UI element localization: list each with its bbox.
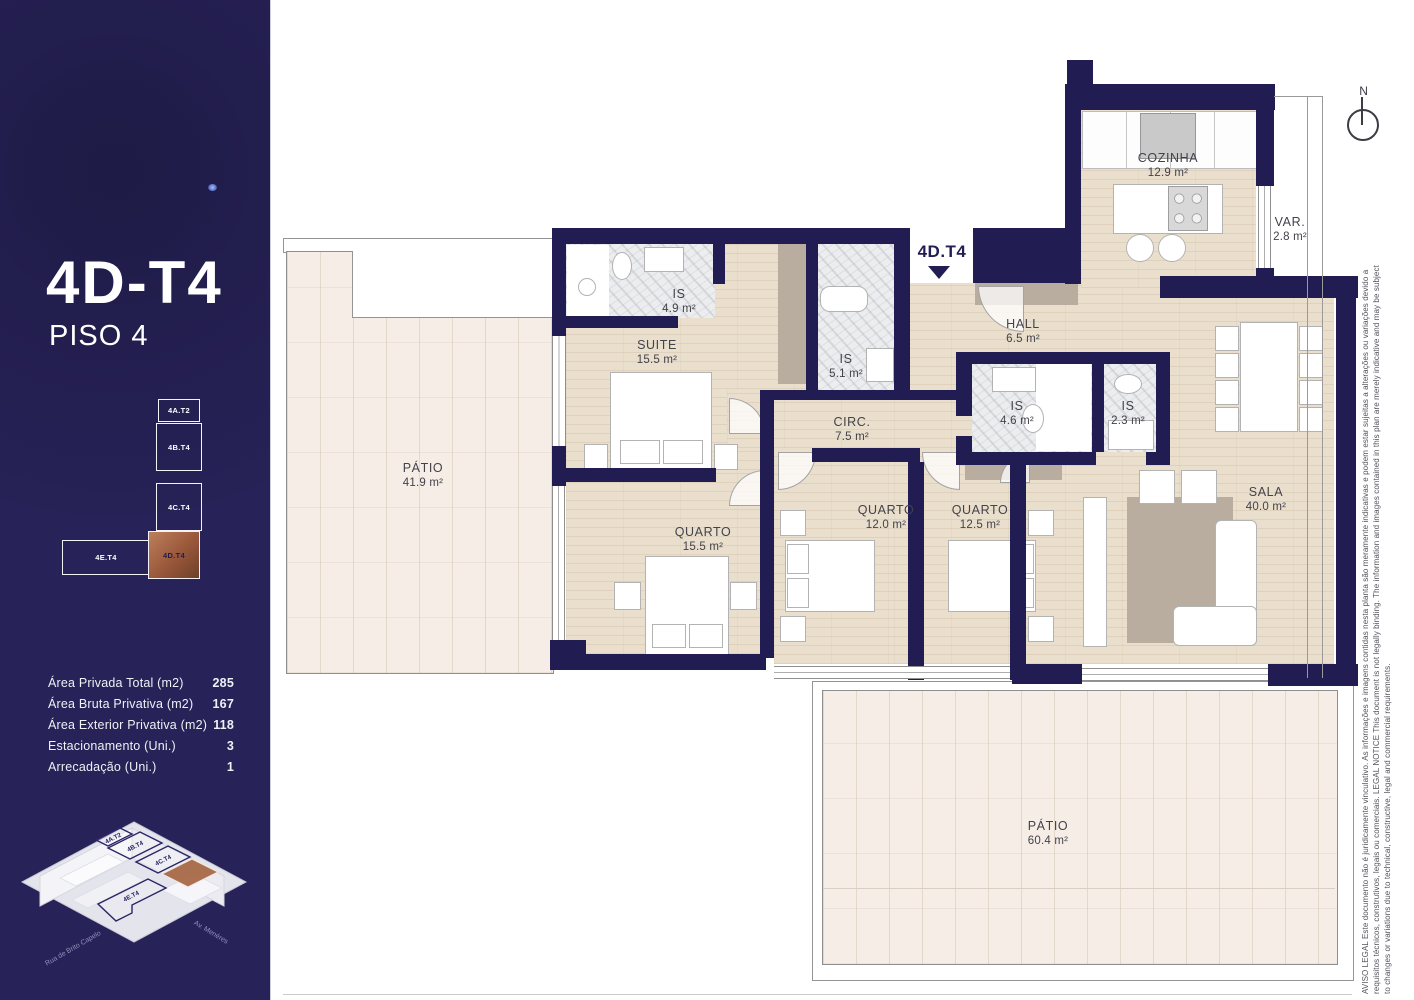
facade-line	[1322, 96, 1323, 678]
legal-line: AVISO LEGAL Este documento não é juridic…	[1360, 166, 1371, 994]
room-label-quarto3: QUARTO12.5 m²	[952, 503, 1009, 533]
area-table: Área Privada Total (m2)285 Área Bruta Pr…	[48, 676, 234, 774]
room-area: 12.0 m²	[858, 518, 915, 533]
armchair	[1139, 470, 1175, 504]
area-value: 3	[227, 739, 234, 753]
room-label-patio1: PÁTIO41.9 m²	[403, 461, 444, 491]
window	[552, 486, 565, 640]
area-label: Estacionamento (Uni.)	[48, 739, 176, 753]
room-label-is3: IS4.6 m²	[1000, 399, 1034, 429]
wardrobe-strip	[778, 244, 806, 384]
room-name: PÁTIO	[1028, 819, 1069, 834]
chair	[1215, 407, 1239, 432]
facade-line	[1307, 96, 1308, 678]
wall-segment	[1067, 60, 1093, 86]
room-name: QUARTO	[858, 503, 915, 518]
room-name: CIRC.	[833, 415, 870, 430]
area-row: Arrecadação (Uni.)1	[48, 760, 234, 774]
tv-sideboard	[1083, 497, 1107, 647]
wall-segment	[1256, 268, 1274, 298]
room-name: QUARTO	[952, 503, 1009, 518]
room-label-circ: CIRC.7.5 m²	[833, 415, 870, 445]
room-name: IS	[1111, 399, 1145, 414]
entrance-label: 4D.T4	[912, 242, 972, 262]
room-label-is2: IS5.1 m²	[829, 352, 863, 382]
pillow	[620, 440, 660, 464]
stack-unit-label: 4C.T4	[168, 503, 190, 512]
cooktop-icon	[1168, 186, 1208, 231]
wall-segment	[1268, 664, 1358, 686]
legal-line: requisitos técnicos, construtivos, legai…	[1371, 166, 1382, 994]
wall-segment	[1010, 462, 1026, 646]
room-label-quarto1: QUARTO15.5 m²	[675, 525, 732, 555]
room-area: 2.3 m²	[1111, 414, 1145, 429]
nightstand	[1028, 510, 1054, 536]
room-name: SALA	[1246, 485, 1286, 500]
room-area: 60.4 m²	[1028, 834, 1069, 849]
room-label-cozinha: COZINHA12.9 m²	[1138, 151, 1198, 181]
area-row: Área Exterior Privativa (m2)118	[48, 718, 234, 732]
wall-segment	[1156, 352, 1170, 465]
shower-icon	[866, 348, 894, 382]
wall-segment	[956, 452, 1096, 465]
room-area: 5.1 m²	[829, 367, 863, 382]
room-name: IS	[829, 352, 863, 367]
wall-segment	[566, 654, 766, 670]
window	[774, 666, 1010, 679]
stack-unit-4e: 4E.T4	[62, 540, 150, 575]
area-value: 285	[213, 676, 234, 690]
pillow	[652, 624, 686, 648]
street-label-left: Rua de Brito Capelo	[44, 930, 102, 968]
room-name: QUARTO	[675, 525, 732, 540]
wall-segment	[1092, 364, 1104, 452]
wall-segment	[1065, 110, 1081, 284]
patio-left-notch	[352, 251, 553, 318]
room-label-is4: IS2.3 m²	[1111, 399, 1145, 429]
wall-segment	[973, 228, 1080, 283]
wall-segment	[552, 228, 910, 244]
area-row: Área Privada Total (m2)285	[48, 676, 234, 690]
north-letter: N	[1359, 84, 1368, 98]
room-area: 12.9 m²	[1138, 166, 1198, 181]
bathtub-icon	[820, 286, 868, 312]
room-area: 15.5 m²	[637, 353, 677, 368]
wall-segment	[894, 244, 910, 390]
wall-segment	[812, 448, 920, 462]
room-area: 6.5 m²	[1006, 332, 1040, 347]
wall-segment	[552, 244, 566, 336]
window-sala	[1082, 668, 1268, 681]
wall-segment	[956, 352, 1170, 364]
unit-title: 4D-T4	[46, 248, 223, 317]
facade-line	[1274, 96, 1322, 97]
wall-segment	[806, 244, 818, 390]
entrance-arrow-icon	[928, 266, 950, 279]
room-name: COZINHA	[1138, 151, 1198, 166]
toilet-icon	[1114, 374, 1142, 394]
floor-plan-sheet: 4D-T4 PISO 4 4A.T2 4B.T4 4C.T4 4E.T4 4D.…	[0, 0, 1414, 1000]
shower-area	[1036, 364, 1091, 451]
wall-segment	[1336, 276, 1356, 676]
area-value: 167	[213, 697, 234, 711]
legal-disclaimer: AVISO LEGAL Este documento não é juridic…	[1360, 166, 1393, 994]
room-area: 4.6 m²	[1000, 414, 1034, 429]
room-name: HALL	[1006, 317, 1040, 332]
room-name: IS	[1000, 399, 1034, 414]
stack-unit-4a: 4A.T2	[158, 399, 200, 422]
room-area: 15.5 m²	[675, 540, 732, 555]
stool	[1126, 234, 1154, 262]
chair	[1299, 326, 1323, 351]
nightstand	[584, 444, 608, 470]
street-label-right: Av. Menéres	[192, 920, 229, 946]
room-label-var: VAR.2.8 m²	[1273, 215, 1307, 245]
chair	[1299, 380, 1323, 405]
sofa	[1173, 606, 1257, 646]
chair	[1215, 353, 1239, 378]
chair	[1215, 380, 1239, 405]
nightstand	[614, 582, 641, 610]
wall-segment	[713, 244, 725, 284]
toilet-icon	[612, 252, 632, 280]
dining-table	[1240, 322, 1298, 432]
legal-line: to changes or variations due to technica…	[1382, 166, 1393, 994]
photo-glint	[208, 184, 217, 191]
compass-icon	[1347, 109, 1379, 141]
nightstand	[714, 444, 738, 470]
area-value: 1	[227, 760, 234, 774]
washbasin-icon	[992, 367, 1036, 392]
wall-segment	[770, 390, 960, 400]
nightstand	[1028, 616, 1054, 642]
pillow	[689, 624, 723, 648]
room-label-patio2: PÁTIO60.4 m²	[1028, 819, 1069, 849]
stack-unit-label: 4E.T4	[95, 553, 117, 562]
stack-unit-label: 4A.T2	[168, 406, 190, 415]
pillow	[663, 440, 703, 464]
wall-segment	[566, 316, 678, 328]
site-boundary-line	[283, 994, 1352, 995]
nightstand	[780, 510, 806, 536]
room-label-is1: IS4.9 m²	[662, 287, 696, 317]
room-area: 7.5 m²	[833, 430, 870, 445]
area-label: Área Bruta Privativa (m2)	[48, 697, 193, 711]
room-area: 4.9 m²	[662, 302, 696, 317]
nightstand	[780, 616, 806, 642]
wall-segment	[1065, 84, 1275, 110]
wall-segment	[760, 390, 774, 658]
area-row: Estacionamento (Uni.)3	[48, 739, 234, 753]
area-label: Área Privada Total (m2)	[48, 676, 184, 690]
stack-unit-4d-highlighted: 4D.T4	[148, 531, 200, 579]
room-area: 41.9 m²	[403, 476, 444, 491]
room-area: 40.0 m²	[1246, 500, 1286, 515]
area-value: 118	[213, 718, 234, 732]
stack-unit-4b: 4B.T4	[156, 423, 202, 471]
room-label-hall: HALL6.5 m²	[1006, 317, 1040, 347]
building-3d-view: 4A.T2 4B.T4 4C.T4 4E.T4 Rua de Brito Cap…	[12, 782, 258, 992]
room-name: SUITE	[637, 338, 677, 353]
room-label-suite: SUITE15.5 m²	[637, 338, 677, 368]
room-area: 2.8 m²	[1273, 230, 1307, 245]
window-var	[1258, 186, 1271, 268]
area-row: Área Bruta Privativa (m2)167	[48, 697, 234, 711]
stack-unit-4c: 4C.T4	[156, 483, 202, 531]
shower-drain-icon	[578, 278, 596, 296]
sidebar: 4D-T4 PISO 4 4A.T2 4B.T4 4C.T4 4E.T4 4D.…	[0, 0, 271, 1000]
room-name: VAR.	[1273, 215, 1307, 230]
stool	[1158, 234, 1186, 262]
window	[552, 336, 566, 446]
wall-segment	[956, 364, 972, 416]
room-name: IS	[662, 287, 696, 302]
patio-tile-joint	[823, 888, 1335, 889]
stack-unit-label: 4B.T4	[168, 443, 190, 452]
room-area: 12.5 m²	[952, 518, 1009, 533]
chair	[1215, 326, 1239, 351]
wall-segment	[558, 468, 716, 482]
wall-segment	[1256, 94, 1274, 186]
chair	[1299, 353, 1323, 378]
pillow	[787, 578, 809, 608]
stack-unit-label: 4D.T4	[163, 551, 185, 560]
wall-segment	[908, 462, 924, 646]
pillow	[787, 544, 809, 574]
area-label: Área Exterior Privativa (m2)	[48, 718, 207, 732]
chair	[1299, 407, 1323, 432]
area-label: Arrecadação (Uni.)	[48, 760, 157, 774]
room-label-quarto2: QUARTO12.0 m²	[858, 503, 915, 533]
floor-subtitle: PISO 4	[49, 320, 149, 353]
armchair	[1181, 470, 1217, 504]
room-name: PÁTIO	[403, 461, 444, 476]
room-label-sala: SALA40.0 m²	[1246, 485, 1286, 515]
washbasin-icon	[644, 247, 684, 272]
wall-segment	[1010, 646, 1026, 680]
patio-bottom	[822, 690, 1338, 965]
nightstand	[730, 582, 757, 610]
